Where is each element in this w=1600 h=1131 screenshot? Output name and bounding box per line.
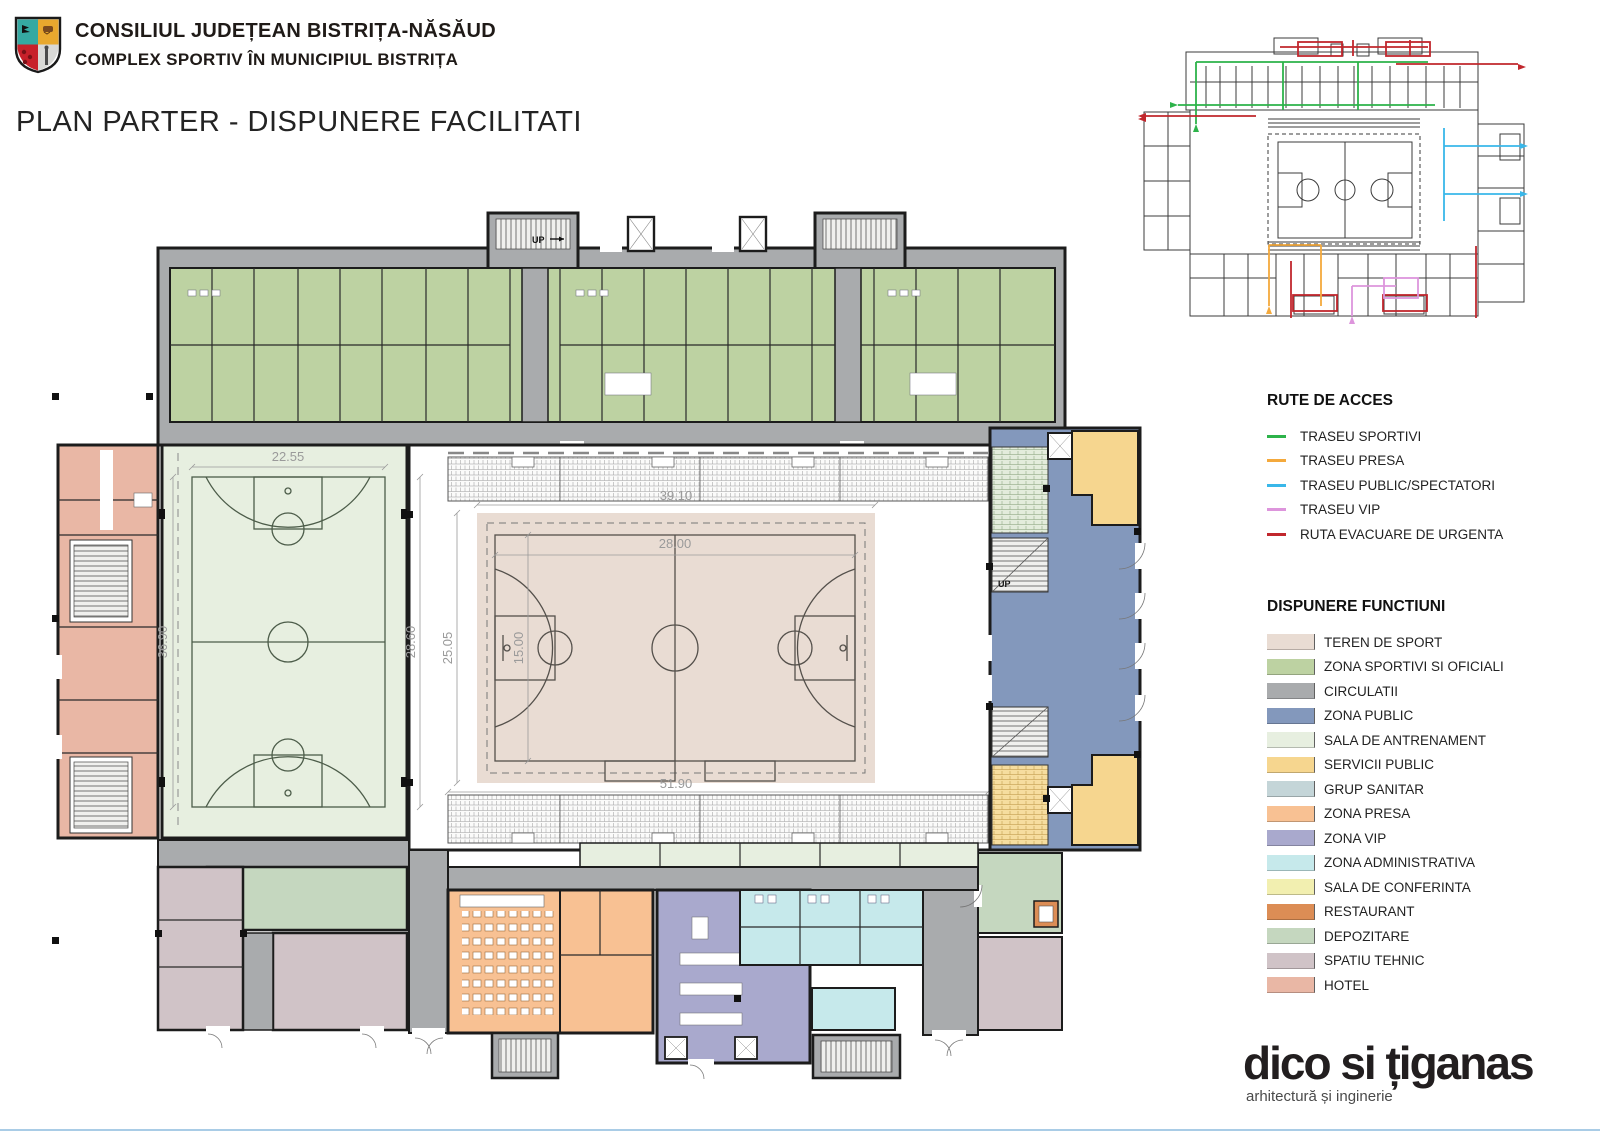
- functions-legend: DISPUNERE FUNCTIUNI TEREN DE SPORT ZONA …: [1267, 598, 1597, 998]
- function-label: HOTEL: [1324, 978, 1369, 993]
- legend-row-sanitar: GRUP SANITAR: [1267, 777, 1597, 802]
- zone-bottom-left: [155, 840, 409, 1048]
- function-label: ZONA ADMINISTRATIVA: [1324, 855, 1475, 870]
- route-line-public-icon: [1267, 484, 1286, 487]
- function-label: CIRCULATII: [1324, 684, 1398, 699]
- swatch-public: [1267, 708, 1315, 724]
- swatch-circulatii: [1267, 683, 1315, 699]
- dim-arena-length: 51.90: [660, 776, 693, 791]
- function-label: DEPOZITARE: [1324, 929, 1409, 944]
- route-line-presa-icon: [1267, 459, 1286, 462]
- swatch-restaurant: [1267, 904, 1315, 920]
- architect-logo: dico si țiganas arhitectură și inginerie: [1243, 1040, 1595, 1105]
- routes-legend-title: RUTE DE ACCES: [1267, 392, 1597, 410]
- dim-training-height: 36.90: [155, 626, 170, 659]
- function-label: RESTAURANT: [1324, 904, 1415, 919]
- function-label: TEREN DE SPORT: [1324, 635, 1442, 650]
- minimap-court: [1268, 134, 1420, 244]
- swatch-tehnic: [1267, 953, 1315, 969]
- legend-row-vip: ZONA VIP: [1267, 826, 1597, 851]
- route-label: TRASEU VIP: [1300, 502, 1380, 517]
- org-name: CONSILIUL JUDEȚEAN BISTRIȚA-NĂSĂUD: [75, 20, 496, 43]
- route-line-sportivi-icon: [1267, 435, 1286, 438]
- main-floor-plan: UP: [40, 195, 1150, 1085]
- function-label: ZONA VIP: [1324, 831, 1386, 846]
- dim-training-width: 22.55: [272, 449, 305, 464]
- zone-training-hall: 22.55 36.90: [155, 445, 407, 838]
- routes-legend: RUTE DE ACCES TRASEU SPORTIVI TRASEU PRE…: [1267, 392, 1597, 547]
- function-label: ZONA PUBLIC: [1324, 708, 1413, 723]
- architect-logo-name: dico si țiganas: [1243, 1040, 1595, 1086]
- route-sportivi: [1178, 62, 1435, 124]
- zone-main-arena: 39.10 28.00 25.05 15.00 28.60 51.90: [403, 445, 991, 850]
- route-line-vip-icon: [1267, 508, 1286, 511]
- competition-court: [477, 513, 875, 783]
- swatch-teren: [1267, 634, 1315, 650]
- swatch-sportivi: [1267, 659, 1315, 675]
- swatch-administrativa: [1267, 855, 1315, 871]
- legend-row-traseu-sportivi: TRASEU SPORTIVI: [1267, 424, 1597, 449]
- legend-row-ruta-evacuare: RUTA EVACUARE DE URGENTA: [1267, 522, 1597, 547]
- route-public: [1444, 128, 1520, 221]
- coat-of-arms: [14, 16, 62, 74]
- legend-row-depozitare: DEPOZITARE: [1267, 924, 1597, 949]
- legend-row-circulatii: CIRCULATII: [1267, 679, 1597, 704]
- stands-foyer-green: [992, 447, 1048, 533]
- function-label: GRUP SANITAR: [1324, 782, 1424, 797]
- route-label: TRASEU SPORTIVI: [1300, 429, 1421, 444]
- legend-row-antrenament: SALA DE ANTRENAMENT: [1267, 728, 1597, 753]
- architect-logo-tagline: arhitectură și inginerie: [1246, 1088, 1595, 1105]
- function-label: SALA DE ANTRENAMENT: [1324, 733, 1486, 748]
- legend-row-traseu-public: TRASEU PUBLIC/SPECTATORI: [1267, 473, 1597, 498]
- swatch-conferinta: [1267, 879, 1315, 895]
- key-plan-minimap: [1128, 16, 1540, 351]
- page-title: PLAN PARTER - DISPUNERE FACILITATI: [16, 106, 582, 139]
- stands-foyer-yellow: [992, 765, 1048, 845]
- project-name: COMPLEX SPORTIV ÎN MUNICIPIUL BISTRIȚA: [75, 50, 496, 70]
- route-label: RUTA EVACUARE DE URGENTA: [1300, 527, 1503, 542]
- zone-bottom-wing: [155, 840, 978, 1079]
- press-zone: [448, 890, 653, 1033]
- route-label: TRASEU PUBLIC/SPECTATORI: [1300, 478, 1495, 493]
- legend-row-administrativa: ZONA ADMINISTRATIVA: [1267, 851, 1597, 876]
- dim-hall-width: 39.10: [660, 488, 693, 503]
- legend-row-traseu-vip: TRASEU VIP: [1267, 498, 1597, 523]
- legend-row-teren: TEREN DE SPORT: [1267, 630, 1597, 655]
- function-label: SERVICII PUBLIC: [1324, 757, 1434, 772]
- dim-court-depth: 15.00: [511, 632, 526, 665]
- function-label: SALA DE CONFERINTA: [1324, 880, 1471, 895]
- legend-row-servicii: SERVICII PUBLIC: [1267, 753, 1597, 778]
- swatch-vip: [1267, 830, 1315, 846]
- dim-court-width: 28.00: [659, 536, 692, 551]
- technical-room: [273, 933, 407, 1030]
- technical-room: [978, 937, 1062, 1030]
- legend-row-tehnic: SPATIU TEHNIC: [1267, 949, 1597, 974]
- legend-row-presa: ZONA PRESA: [1267, 802, 1597, 827]
- zone-hotel-wing: [54, 445, 158, 838]
- swatch-antrenament: [1267, 732, 1315, 748]
- technical-room: [158, 867, 243, 1030]
- route-label: TRASEU PRESA: [1300, 453, 1404, 468]
- legend-row-restaurant: RESTAURANT: [1267, 900, 1597, 925]
- dim-west-depth: 28.60: [403, 626, 418, 659]
- dim-hall-depth: 25.05: [440, 632, 455, 665]
- legend-row-public: ZONA PUBLIC: [1267, 704, 1597, 729]
- function-label: ZONA SPORTIVI SI OFICIALI: [1324, 659, 1504, 674]
- legend-row-hotel: HOTEL: [1267, 973, 1597, 998]
- function-label: SPATIU TEHNIC: [1324, 953, 1425, 968]
- legend-row-conferinta: SALA DE CONFERINTA: [1267, 875, 1597, 900]
- swatch-hotel: [1267, 977, 1315, 993]
- up-label-foyer: UP: [998, 579, 1011, 589]
- plan-sheet: CONSILIUL JUDEȚEAN BISTRIȚA-NĂSĂUD COMPL…: [0, 0, 1600, 1131]
- legend-row-sportivi: ZONA SPORTIVI SI OFICIALI: [1267, 655, 1597, 680]
- zone-public-foyer: UP: [984, 428, 1145, 850]
- up-label-top: UP: [532, 235, 545, 245]
- swatch-sanitar: [1267, 781, 1315, 797]
- header: CONSILIUL JUDEȚEAN BISTRIȚA-NĂSĂUD COMPL…: [14, 16, 496, 74]
- functions-legend-title: DISPUNERE FUNCTIUNI: [1267, 598, 1597, 616]
- zone-top-wing: UP: [158, 213, 1065, 449]
- press-seating: [462, 911, 554, 1015]
- function-label: ZONA PRESA: [1324, 806, 1410, 821]
- route-line-evacuare-icon: [1267, 533, 1286, 536]
- swatch-presa: [1267, 806, 1315, 822]
- legend-row-traseu-presa: TRASEU PRESA: [1267, 449, 1597, 474]
- swatch-depozitare: [1267, 928, 1315, 944]
- swatch-servicii: [1267, 757, 1315, 773]
